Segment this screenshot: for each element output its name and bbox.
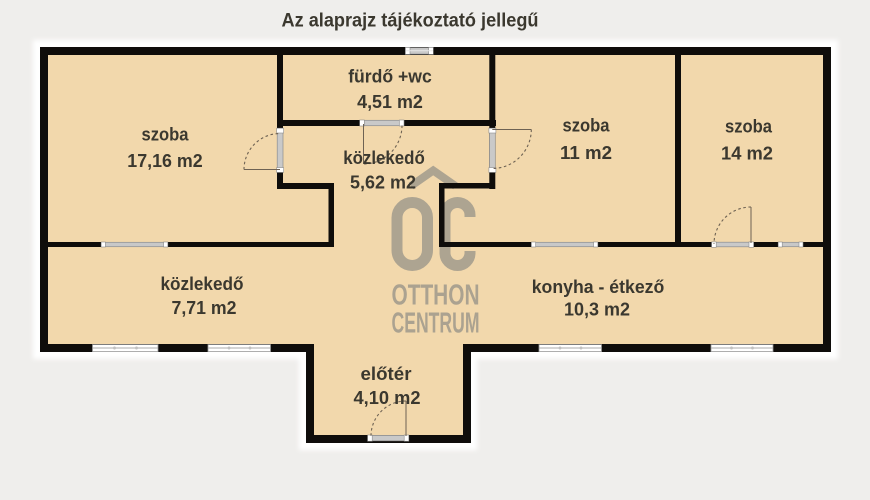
svg-text:közlekedő: közlekedő (161, 274, 244, 294)
svg-text:7,71 m2: 7,71 m2 (172, 298, 237, 318)
svg-text:17,16 m2: 17,16 m2 (127, 151, 202, 171)
svg-text:szoba: szoba (563, 116, 611, 136)
svg-text:11 m2: 11 m2 (560, 143, 612, 163)
svg-text:fürdő +wc: fürdő +wc (348, 67, 432, 87)
svg-text:4,51 m2: 4,51 m2 (357, 92, 423, 112)
svg-text:Az alaprajz tájékoztató jelleg: Az alaprajz tájékoztató jellegű (282, 10, 539, 32)
svg-text:4,10 m2: 4,10 m2 (354, 388, 421, 408)
svg-text:szoba: szoba (142, 125, 190, 145)
svg-text:konyha - étkező: konyha - étkező (532, 277, 665, 297)
svg-text:szoba: szoba (725, 117, 773, 137)
svg-text:előtér: előtér (361, 364, 412, 384)
svg-text:14 m2: 14 m2 (721, 144, 773, 164)
svg-text:közlekedő: közlekedő (343, 148, 425, 168)
svg-text:CENTRUM: CENTRUM (392, 308, 480, 340)
svg-text:5,62 m2: 5,62 m2 (350, 173, 416, 193)
svg-text:10,3 m2: 10,3 m2 (564, 300, 630, 320)
